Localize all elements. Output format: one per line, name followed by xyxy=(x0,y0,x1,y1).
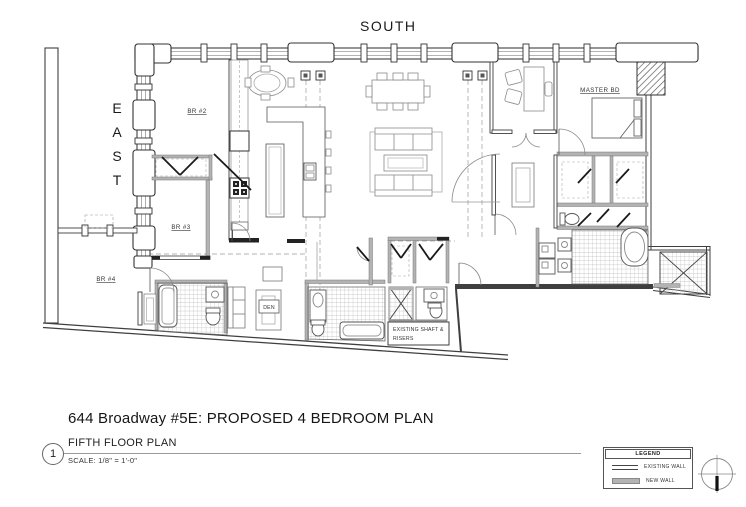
room-label-master-bedroom: MASTER BD xyxy=(580,87,620,94)
legend-item-new-wall: NEW WALL xyxy=(604,474,692,488)
room-label-br2: BR #2 xyxy=(187,108,206,115)
compass-north-arrow-icon xyxy=(696,453,740,497)
new-wall-symbol xyxy=(612,478,640,484)
page-title: 644 Broadway #5E: PROPOSED 4 BEDROOM PLA… xyxy=(68,410,434,427)
shaft-threshold xyxy=(389,287,413,290)
floor-plan-drawing: BR #2 BR #3 BR #4 MASTER BD DEN EXISTING… xyxy=(0,0,746,507)
kitchen-fixtures xyxy=(230,60,331,230)
existing-wall-symbol xyxy=(612,465,638,470)
drawing-name: FIFTH FLOOR PLAN xyxy=(68,437,177,449)
room-label-den: DEN xyxy=(263,305,275,311)
study-furniture xyxy=(504,67,552,111)
shaft-label-line2: RISERS xyxy=(393,336,414,342)
legend-title: LEGEND xyxy=(605,449,691,459)
drawing-number-bubble: 1 xyxy=(42,443,64,465)
legend: LEGEND EXISTING WALL NEW WALL xyxy=(603,447,693,489)
legend-item-existing-wall: EXISTING WALL xyxy=(604,460,692,474)
master-bed xyxy=(592,98,642,138)
orientation-label-south: SOUTH xyxy=(360,18,417,34)
legend-item-label: EXISTING WALL xyxy=(644,464,686,470)
scale-note: SCALE: 1/8" = 1'-0" xyxy=(68,456,137,465)
room-label-br4: BR #4 xyxy=(96,276,115,283)
room-label-br3: BR #3 xyxy=(171,224,190,231)
dining-set xyxy=(366,73,430,110)
living-room-furniture xyxy=(370,128,442,196)
hall-console xyxy=(512,163,534,207)
title-divider-line xyxy=(62,453,581,454)
den-furniture xyxy=(228,267,282,330)
shaft-label-line1: EXISTING SHAFT & xyxy=(393,327,444,333)
orientation-label-east: EAST xyxy=(109,100,125,196)
door-swings xyxy=(150,129,585,292)
legend-item-label: NEW WALL xyxy=(646,478,675,484)
